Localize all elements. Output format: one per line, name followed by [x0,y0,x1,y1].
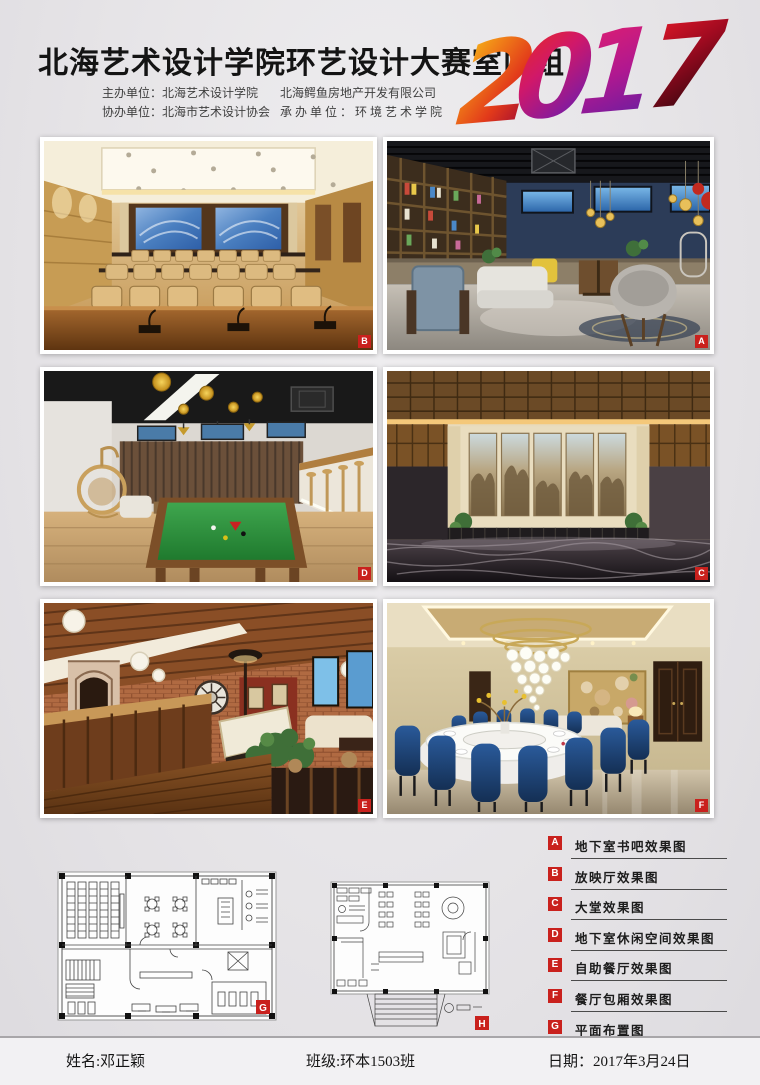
photo-billiards-room: D [40,367,377,586]
photo-dining-room: F [383,599,714,818]
legend-letter-badge: D [548,928,562,942]
undertaker: 承办单位：环境艺术学院 [280,103,445,120]
floor-plan-h-drawing: H [323,868,501,1040]
floor-plan-g-drawing: G [52,866,282,1026]
host-organizer: 主办单位：北海艺术设计学院 [102,84,258,101]
photo-lobby: C [383,367,714,586]
screening-room-render [44,141,373,350]
legend-item: F餐厅包厢效果图 [548,989,727,1012]
legend-item: E自助餐厅效果图 [548,958,727,981]
photo-tag: E [358,799,371,812]
photo-buffet-restaurant: E [40,599,377,818]
legend-item: D地下室休闲空间效果图 [548,928,727,951]
legend-label: 地下室休闲空间效果图 [571,928,727,951]
legend-label: 自助餐厅效果图 [571,958,727,981]
legend-label: 大堂效果图 [571,897,727,920]
photo-tag: F [695,799,708,812]
lobby-render [387,371,710,582]
floor-plan-g: G G [52,866,282,1026]
photo-tag: B [358,335,371,348]
legend-label: 放映厅效果图 [571,867,727,890]
legend-item: A地下室书吧效果图 [548,836,727,859]
date: 日期：2017年3月24日 [548,1050,691,1071]
legend-label: 餐厅包厢效果图 [571,989,727,1012]
floor-plan-h: H H [323,868,501,1040]
legend-letter-badge: B [548,867,562,881]
photo-screening-room: B [40,137,377,354]
legend-letter-badge: F [548,989,562,1003]
legend-label: 地下室书吧效果图 [571,836,727,859]
class-name: 班级:环本1503班 [306,1050,415,1071]
billiards-render [44,371,373,582]
year-digit: 1 [574,8,662,136]
legend-item: B放映厅效果图 [548,867,727,890]
co-organizer: 协办单位：北海市艺术设计协会 [102,103,270,120]
plan-tag-letter: H [478,1019,485,1030]
competition-poster: 北海艺术设计学院环艺设计大赛室内组 主办单位：北海艺术设计学院 北海鳄鱼房地产开… [0,0,760,1085]
host-company: 北海鳄鱼房地产开发有限公司 [280,84,436,101]
legend-letter-badge: E [548,958,562,972]
legend-item: C大堂效果图 [548,897,727,920]
author-name: 姓名:邓正颖 [66,1050,145,1071]
photo-tag: D [358,567,371,580]
year-digit: 7 [642,2,730,130]
photo-book-bar: A [383,137,714,354]
photo-tag: C [695,567,708,580]
legend-letter-badge: C [548,897,562,911]
photo-tag: A [695,335,708,348]
book-bar-render [387,141,710,350]
legend-letter-badge: A [548,836,562,850]
poster-title: 北海艺术设计学院环艺设计大赛室内组 [38,38,565,82]
plan-tag-letter: G [259,1003,267,1014]
buffet-render [44,603,373,814]
dining-render [387,603,710,814]
legend-letter-badge: G [548,1020,562,1034]
